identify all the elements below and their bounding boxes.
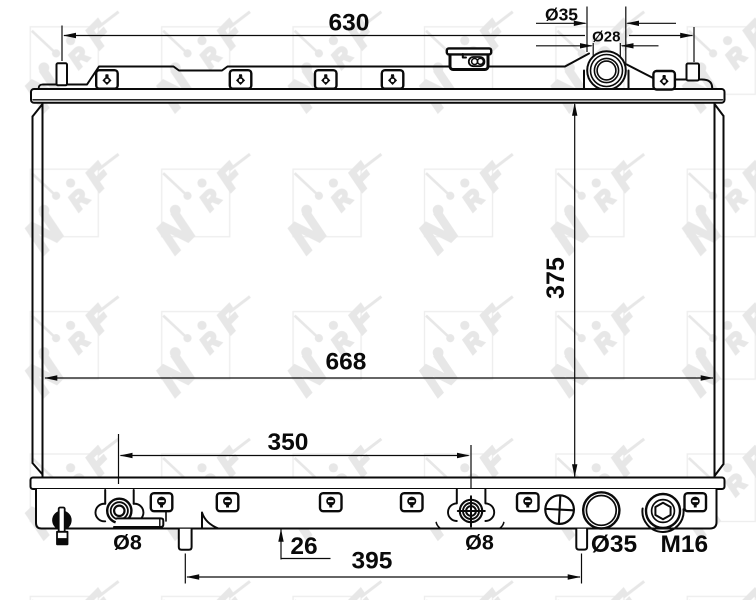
svg-text:Ø28: Ø28 xyxy=(592,29,620,46)
svg-text:395: 395 xyxy=(352,548,393,575)
svg-text:630: 630 xyxy=(329,10,370,37)
svg-text:Ø8: Ø8 xyxy=(113,530,142,554)
svg-text:Ø35: Ø35 xyxy=(591,531,637,558)
svg-text:M16: M16 xyxy=(660,531,708,558)
svg-text:Ø35: Ø35 xyxy=(545,5,578,25)
svg-text:350: 350 xyxy=(268,429,309,456)
svg-text:Ø8: Ø8 xyxy=(465,531,494,555)
svg-text:375: 375 xyxy=(542,257,570,299)
svg-text:668: 668 xyxy=(326,348,367,375)
svg-text:26: 26 xyxy=(290,533,317,560)
